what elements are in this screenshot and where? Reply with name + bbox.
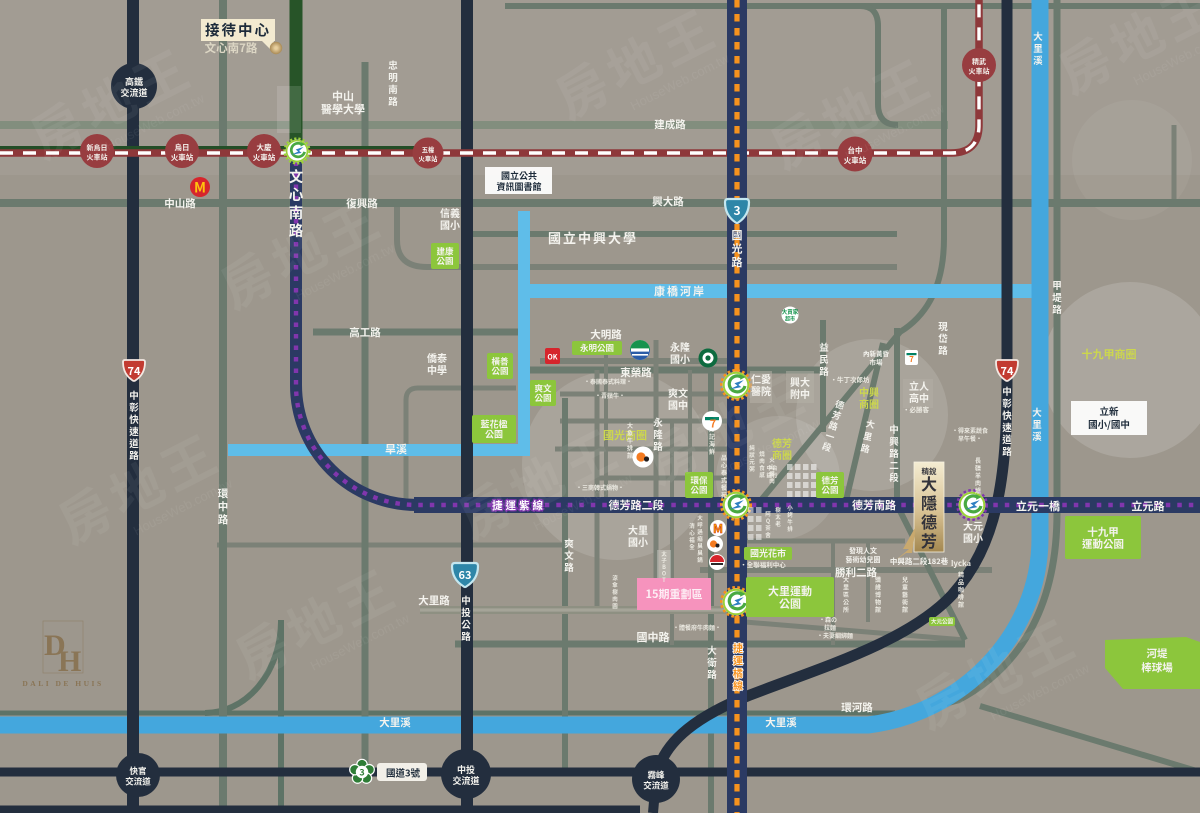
svg-text:15期重劃區: 15期重劃區 (646, 586, 703, 602)
svg-text:DALI DE HUIS: DALI DE HUIS (22, 679, 103, 688)
svg-text:中投公路: 中投公路 (461, 593, 471, 643)
svg-text:長疆羊肉爐: 長疆羊肉爐 (975, 456, 981, 495)
svg-text:益民路: 益民路 (819, 340, 829, 378)
svg-text:環河路: 環河路 (841, 700, 873, 715)
svg-text:興大路: 興大路 (652, 194, 684, 209)
svg-text:藝術幼兒園: 藝術幼兒園 (846, 555, 881, 565)
svg-text:兒童藝術館: 兒童藝術館 (902, 575, 908, 614)
svg-text:甲堤路: 甲堤路 (1052, 278, 1062, 316)
svg-text:忠明南路: 忠明南路 (388, 58, 398, 108)
svg-text:康橋河岸: 康橋河岸 (654, 283, 706, 299)
svg-text:H: H (58, 645, 81, 678)
svg-text:大里溪: 大里溪 (1033, 29, 1043, 67)
svg-text:中興路二段182巷: 中興路二段182巷 (890, 556, 949, 567)
svg-text:公園: 公園 (436, 255, 453, 267)
svg-text:大象牛排館: 大象牛排館 (627, 421, 633, 460)
svg-text:運動公園: 運動公園 (1082, 536, 1124, 551)
svg-text:鑼行: 鑼行 (766, 472, 778, 480)
svg-text:交流道: 交流道 (452, 774, 479, 787)
svg-text:大里溪: 大里溪 (765, 715, 797, 730)
svg-text:德芳路二段: 德芳路二段 (609, 497, 664, 513)
svg-text:早午餐·: 早午餐· (958, 434, 982, 443)
svg-text:中彰快速道路: 中彰快速道路 (1002, 384, 1012, 458)
svg-text:大明路: 大明路 (590, 327, 622, 342)
svg-text:國小: 國小 (628, 534, 648, 549)
svg-text:大衛路: 大衛路 (707, 643, 717, 681)
svg-text:63: 63 (459, 567, 472, 583)
svg-text:接待中心: 接待中心 (205, 20, 271, 41)
svg-text:現岱路: 現岱路 (938, 319, 948, 357)
svg-text:醫學大學: 醫學大學 (321, 101, 365, 117)
svg-text:3: 3 (733, 202, 740, 219)
svg-text:阿Q茶舍: 阿Q茶舍 (765, 510, 771, 539)
svg-text:樹太老: 樹太老 (775, 506, 781, 528)
svg-text:文心南7路: 文心南7路 (205, 40, 258, 56)
svg-text:大里路: 大里路 (418, 593, 450, 608)
svg-text:·必勝客: ·必勝客 (903, 404, 930, 414)
svg-text:國光路: 國光路 (732, 227, 743, 270)
svg-text:立新: 立新 (1099, 404, 1119, 418)
svg-text:小銬牛排: 小銬牛排 (787, 504, 793, 533)
svg-text:大里區公所: 大里區公所 (843, 575, 849, 614)
svg-text:國光花市: 國光花市 (750, 547, 786, 560)
svg-text:精品咖啡館: 精品咖啡館 (958, 570, 964, 609)
svg-text:中興路二段: 中興路二段 (889, 422, 899, 484)
svg-text:交流道: 交流道 (125, 776, 151, 788)
svg-text:·全聯福利中心: ·全聯福利中心 (740, 559, 786, 569)
svg-text:中山路: 中山路 (164, 196, 196, 211)
svg-text:國中路: 國中路 (637, 629, 670, 645)
svg-text:大里溪: 大里溪 (379, 715, 411, 730)
svg-text:立元一橋: 立元一橋 (1016, 498, 1060, 514)
svg-text:·體餐府牛肉麵·: ·體餐府牛肉麵· (673, 623, 721, 632)
svg-text:公園: 公園 (491, 365, 508, 377)
svg-text:爽文路: 爽文路 (564, 536, 574, 574)
svg-text:74: 74 (128, 363, 141, 379)
svg-text:資訊圖書館: 資訊圖書館 (496, 180, 541, 193)
svg-text:公園: 公園 (690, 484, 707, 496)
svg-text:國道3號: 國道3號 (386, 766, 421, 780)
svg-text:公園: 公園 (534, 392, 551, 404)
svg-text:精武: 精武 (972, 57, 986, 67)
svg-text:大呼過癮臭臭鍋: 大呼過癮臭臭鍋 (697, 514, 703, 564)
svg-text:火車站: 火車站 (419, 154, 439, 163)
svg-text:國小: 國小 (963, 530, 983, 545)
svg-text:公園: 公園 (485, 427, 503, 440)
svg-text:勝利二路: 勝利二路 (835, 565, 877, 580)
svg-text:國小: 國小 (670, 351, 690, 366)
svg-text:棒球場: 棒球場 (1141, 660, 1173, 675)
svg-text:商圈: 商圈 (859, 396, 879, 411)
svg-text:公園: 公園 (779, 595, 801, 611)
svg-text:市場: 市場 (870, 357, 884, 367)
svg-text:國小/國中: 國小/國中 (1088, 417, 1130, 431)
svg-text:3: 3 (359, 766, 364, 779)
svg-text:高工路: 高工路 (349, 325, 381, 340)
svg-text:大隱德芳: 大隱德芳 (921, 471, 937, 552)
svg-text:涼傘樹肉圓: 涼傘樹肉圓 (612, 574, 618, 610)
svg-text:7: 7 (909, 354, 914, 365)
svg-text:·青蘋牛·: ·青蘋牛· (595, 391, 625, 400)
svg-text:國小: 國小 (440, 217, 460, 232)
svg-text:國立中興大學: 國立中興大學 (548, 228, 638, 247)
svg-text:清心福全: 清心福全 (689, 522, 695, 551)
svg-text:高中: 高中 (909, 390, 929, 405)
svg-text:纖維博物館: 纖維博物館 (875, 575, 881, 614)
svg-text:·牛丁次郎坊: ·牛丁次郎坊 (831, 374, 871, 384)
svg-text:火車站: 火車站 (969, 67, 990, 77)
svg-text:五權: 五權 (422, 145, 435, 154)
svg-text:M: M (713, 520, 723, 537)
svg-text:·夫妻綑綁麵: ·夫妻綑綁麵 (817, 631, 853, 640)
svg-text:捷運橘線: 捷運橘線 (733, 640, 743, 693)
svg-text:永明公園: 永明公園 (580, 342, 614, 354)
svg-text:立元路: 立元路 (1132, 498, 1165, 514)
svg-text:公園: 公園 (821, 484, 838, 496)
svg-text:火車站: 火車站 (87, 153, 108, 163)
svg-text:中學: 中學 (427, 362, 447, 377)
svg-text:lycka: lycka (951, 558, 971, 569)
svg-text:交流道: 交流道 (643, 780, 669, 792)
svg-text:火車站: 火車站 (253, 152, 276, 163)
svg-text:超市: 超市 (785, 316, 795, 323)
svg-text:旱溪: 旱溪 (385, 441, 407, 457)
svg-text:建成路: 建成路 (654, 117, 686, 132)
svg-text:M: M (194, 178, 206, 198)
svg-text:十九甲商圈: 十九甲商圈 (1082, 346, 1137, 362)
svg-text:大里溪: 大里溪 (1032, 405, 1042, 443)
svg-text:河堤: 河堤 (1147, 646, 1169, 661)
svg-text:大元公園: 大元公園 (931, 617, 954, 625)
svg-text:·泰國泰式料理·: ·泰國泰式料理· (584, 377, 632, 386)
svg-text:德芳南路: 德芳南路 (852, 497, 896, 513)
svg-text:火車站: 火車站 (171, 152, 194, 163)
svg-text:74: 74 (1001, 363, 1014, 379)
svg-text:OK: OK (547, 353, 557, 363)
